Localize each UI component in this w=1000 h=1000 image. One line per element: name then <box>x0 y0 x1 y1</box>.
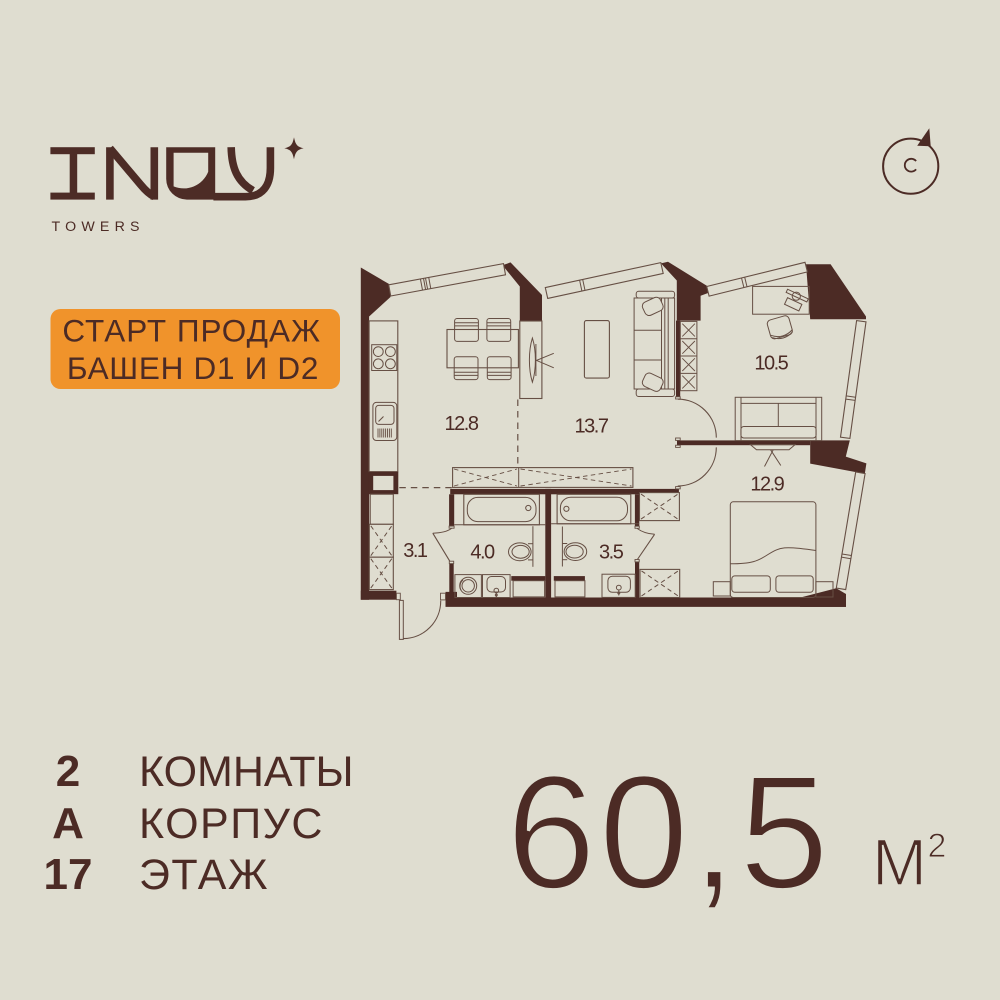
svg-text:17: 17 <box>44 850 93 899</box>
svg-text:2: 2 <box>928 827 947 865</box>
svg-text:3.1: 3.1 <box>403 540 428 562</box>
svg-text:60,5: 60,5 <box>506 742 832 923</box>
svg-text:ЭТАЖ: ЭТАЖ <box>139 851 269 899</box>
svg-text:КОМНАТЫ: КОМНАТЫ <box>139 748 354 796</box>
svg-text:СТАРТ ПРОДАЖ: СТАРТ ПРОДАЖ <box>62 312 321 348</box>
svg-text:А: А <box>52 799 84 848</box>
svg-text:12.8: 12.8 <box>445 413 479 435</box>
svg-text:3.5: 3.5 <box>599 542 624 564</box>
svg-text:TOWERS: TOWERS <box>52 219 145 235</box>
svg-text:13.7: 13.7 <box>575 416 609 438</box>
svg-text:10.5: 10.5 <box>754 353 788 375</box>
svg-text:4.0: 4.0 <box>470 542 495 564</box>
svg-text:2: 2 <box>56 747 80 796</box>
svg-text:КОРПУС: КОРПУС <box>139 800 324 848</box>
svg-text:М: М <box>872 825 927 899</box>
svg-text:12.9: 12.9 <box>750 473 784 495</box>
svg-text:БАШЕН D1 И D2: БАШЕН D1 И D2 <box>67 350 319 386</box>
